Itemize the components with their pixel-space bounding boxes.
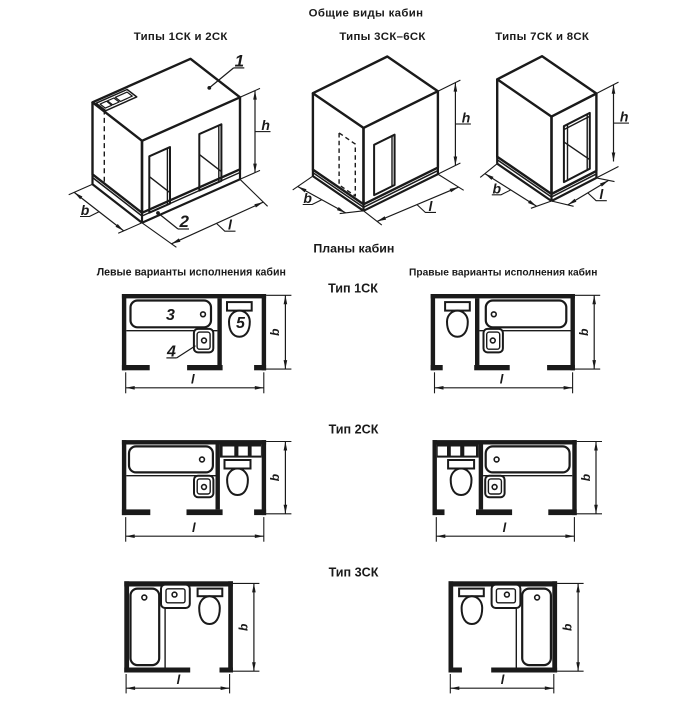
svg-text:b: b bbox=[268, 474, 282, 481]
svg-text:Типы 7СК и 8СК: Типы 7СК и 8СК bbox=[495, 31, 589, 43]
svg-text:Типы 3СК–6СК: Типы 3СК–6СК bbox=[339, 31, 425, 43]
svg-text:b: b bbox=[303, 190, 312, 206]
svg-text:l: l bbox=[503, 520, 507, 535]
svg-text:Правые варианты исполнения каб: Правые варианты исполнения кабин bbox=[409, 267, 597, 279]
svg-text:h: h bbox=[261, 117, 270, 133]
svg-text:l: l bbox=[501, 672, 505, 687]
svg-text:b: b bbox=[493, 180, 502, 196]
svg-text:4: 4 bbox=[166, 344, 176, 361]
svg-text:Планы кабин: Планы кабин bbox=[313, 241, 394, 255]
svg-text:b: b bbox=[268, 329, 282, 336]
svg-text:h: h bbox=[462, 110, 471, 126]
svg-text:2: 2 bbox=[178, 212, 189, 231]
svg-text:5: 5 bbox=[236, 315, 246, 332]
svg-text:b: b bbox=[81, 202, 90, 218]
svg-text:3: 3 bbox=[166, 307, 175, 324]
svg-text:l: l bbox=[500, 372, 504, 387]
svg-text:Тип 2СК: Тип 2СК bbox=[329, 423, 379, 437]
svg-text:Типы 1СК и 2СК: Типы 1СК и 2СК bbox=[134, 31, 228, 43]
svg-text:b: b bbox=[236, 624, 250, 631]
svg-text:l: l bbox=[177, 672, 181, 687]
svg-text:Общие виды кабин: Общие виды кабин bbox=[309, 8, 424, 20]
svg-text:1: 1 bbox=[235, 52, 244, 71]
svg-text:Левые варианты исполнения каби: Левые варианты исполнения кабин bbox=[97, 267, 286, 279]
svg-text:Тип 1СК: Тип 1СК bbox=[328, 282, 378, 296]
svg-text:b: b bbox=[561, 624, 575, 631]
svg-text:h: h bbox=[620, 109, 629, 125]
svg-text:b: b bbox=[577, 329, 591, 336]
svg-text:l: l bbox=[191, 372, 195, 387]
svg-text:l: l bbox=[192, 520, 196, 535]
svg-text:b: b bbox=[579, 474, 593, 481]
svg-text:Тип 3СК: Тип 3СК bbox=[329, 566, 379, 580]
